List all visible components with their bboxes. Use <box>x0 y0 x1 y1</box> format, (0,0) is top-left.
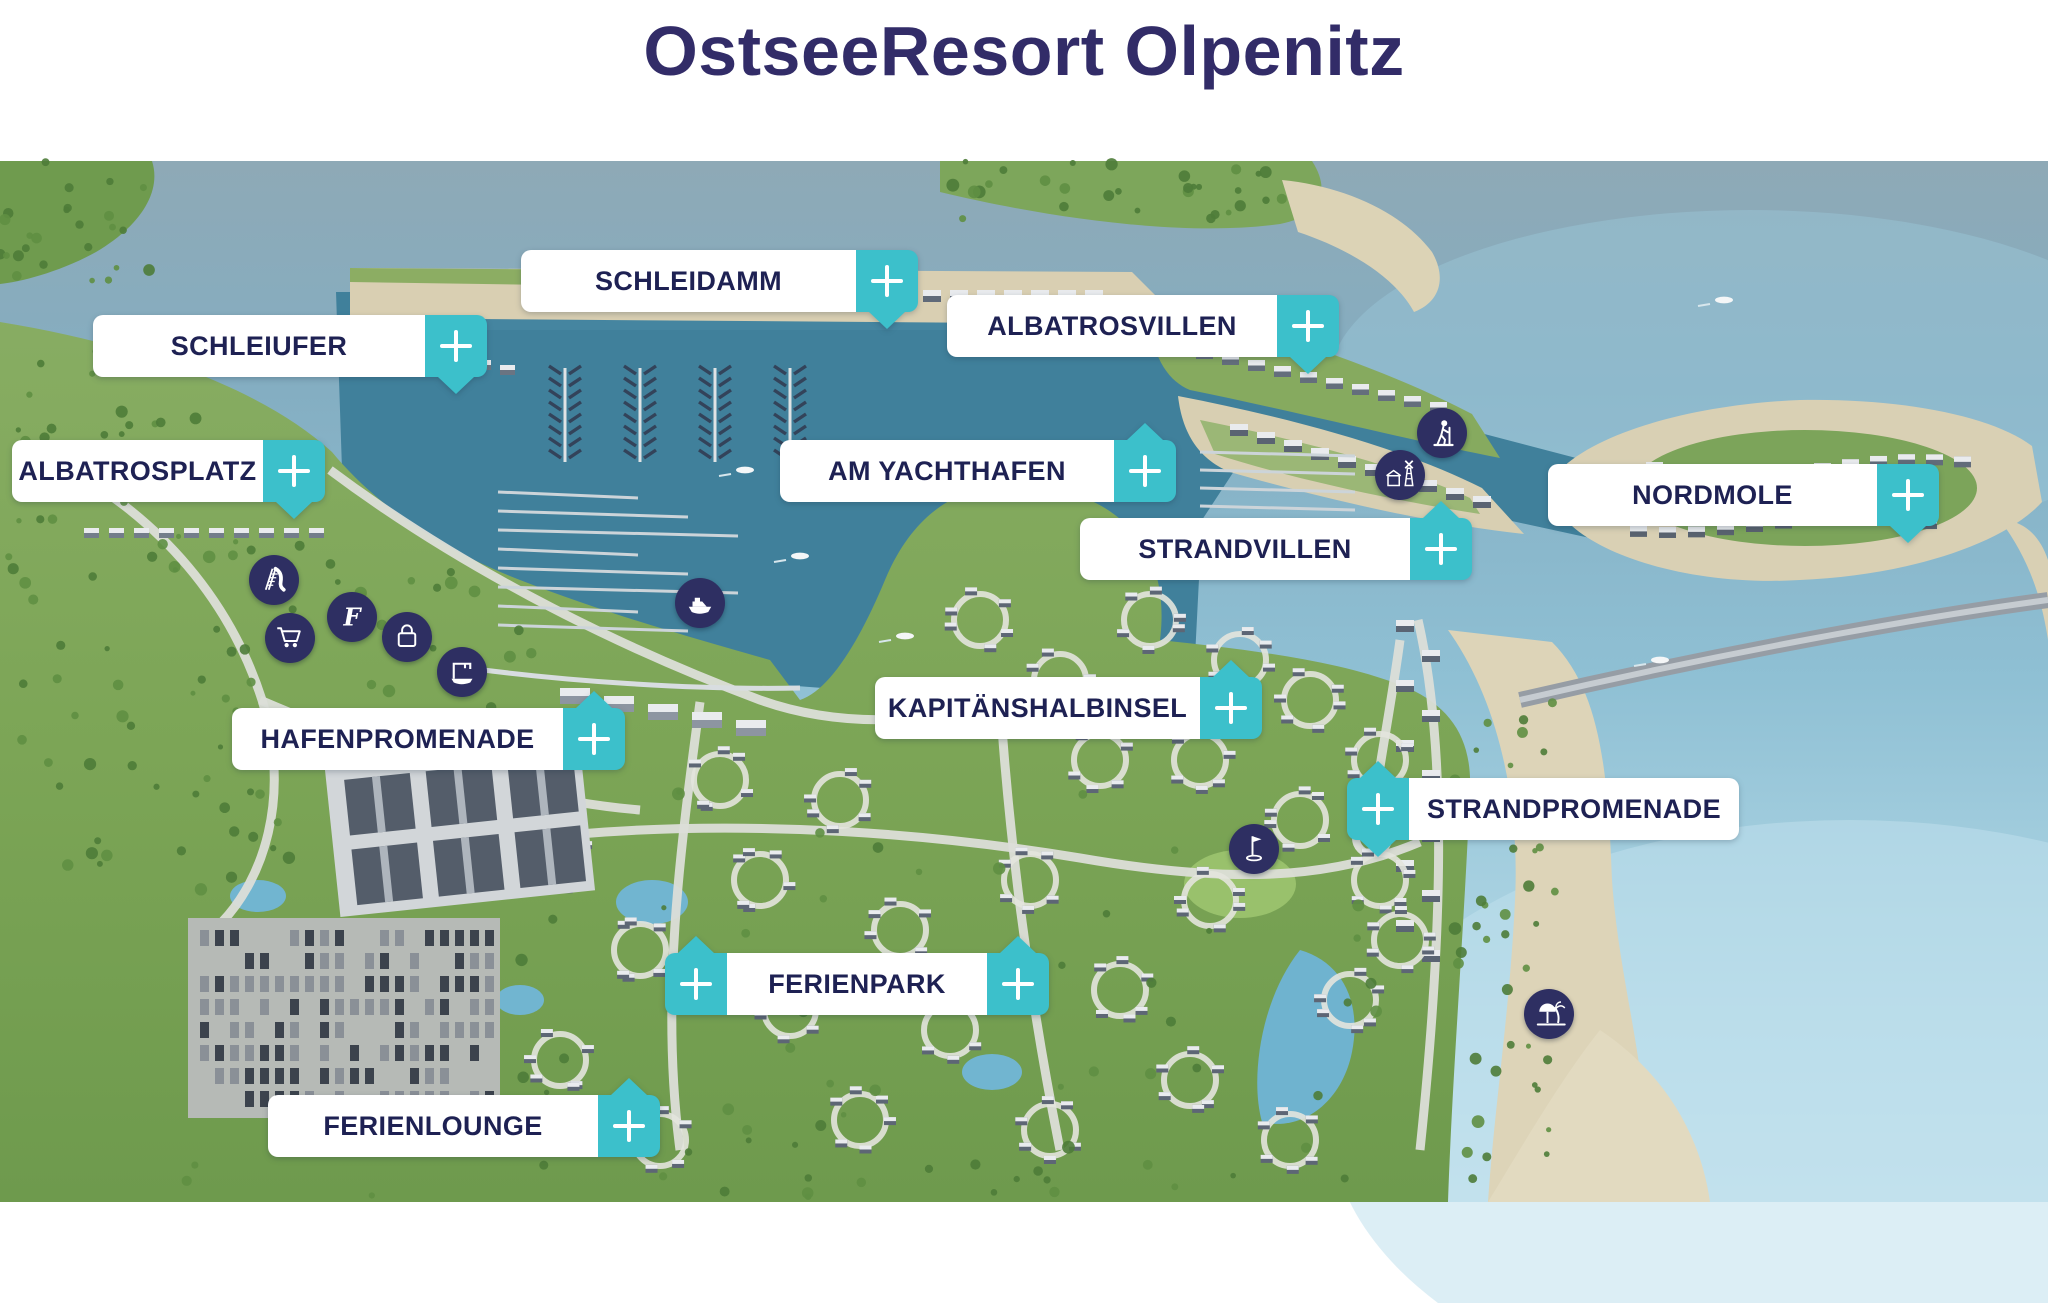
label-box-hafenpromenade[interactable]: HAFENPROMENADE <box>232 708 563 770</box>
marker-tail-down <box>438 377 474 394</box>
label-text: HAFENPROMENADE <box>260 724 534 755</box>
plus-button-strandvillen[interactable] <box>1410 518 1472 580</box>
label-box-schleidamm[interactable]: SCHLEIDAMM <box>521 250 856 312</box>
label-ferienpark: FERIENPARK <box>665 953 1049 1015</box>
marker-tail-up <box>1360 761 1396 778</box>
golf-icon[interactable] <box>1229 824 1279 874</box>
ferry-icon[interactable] <box>675 578 725 628</box>
cart-glyph <box>272 620 308 656</box>
marker-tail-down <box>1890 526 1926 543</box>
label-box-am-yachthafen[interactable]: AM YACHTHAFEN <box>780 440 1114 502</box>
waterslide-icon[interactable] <box>249 555 299 605</box>
ferry-glyph <box>682 585 718 621</box>
label-albatrosvillen: ALBATROSVILLEN <box>947 295 1339 357</box>
label-text: FERIENLOUNGE <box>323 1111 542 1142</box>
marker-tail-down <box>276 502 312 519</box>
mill-glyph <box>1382 457 1418 493</box>
label-box-kapitaenshalbinsel[interactable]: KAPITÄNSHALBINSEL <box>875 677 1200 739</box>
shopping-cart-icon[interactable] <box>265 613 315 663</box>
label-ferienlounge: FERIENLOUNGE <box>268 1095 660 1157</box>
marker-tail-down <box>1360 840 1396 857</box>
label-text: STRANDPROMENADE <box>1427 794 1721 825</box>
label-box-strandpromenade[interactable]: STRANDPROMENADE <box>1409 778 1739 840</box>
marker-tail-up <box>576 691 612 708</box>
f-glyph: F <box>334 599 370 635</box>
marker-tail-up <box>678 936 714 953</box>
parking-lot <box>188 918 500 1118</box>
lift-glyph <box>444 654 480 690</box>
marker-tail-up <box>1000 936 1036 953</box>
label-box-nordmole[interactable]: NORDMOLE <box>1548 464 1877 526</box>
label-text: SCHLEIDAMM <box>595 266 782 297</box>
hiker-glyph <box>1424 415 1460 451</box>
marker-tail-up <box>1127 423 1163 440</box>
label-schleidamm: SCHLEIDAMM <box>521 250 918 312</box>
label-text: AM YACHTHAFEN <box>828 456 1066 487</box>
label-albatrosplatz: ALBATROSPLATZ <box>12 440 325 502</box>
f-logo-icon[interactable]: F <box>327 592 377 642</box>
plus-button-ferienpark-left[interactable] <box>665 953 727 1015</box>
slide-glyph <box>256 562 292 598</box>
plus-button-albatrosvillen[interactable] <box>1277 295 1339 357</box>
label-text: FERIENPARK <box>768 969 946 1000</box>
plus-button-schleidamm[interactable] <box>856 250 918 312</box>
bag-glyph <box>389 619 425 655</box>
plus-button-ferienlounge[interactable] <box>598 1095 660 1157</box>
windmill-icon[interactable] <box>1375 450 1425 500</box>
label-hafenpromenade: HAFENPROMENADE <box>232 708 625 770</box>
hiker-icon[interactable] <box>1417 408 1467 458</box>
plus-button-am-yachthafen[interactable] <box>1114 440 1176 502</box>
label-box-albatrosvillen[interactable]: ALBATROSVILLEN <box>947 295 1277 357</box>
plus-button-schleiufer[interactable] <box>425 315 487 377</box>
boat-lift-icon[interactable] <box>437 647 487 697</box>
label-box-ferienpark[interactable]: FERIENPARK <box>727 953 987 1015</box>
resort-map-page: OstseeResort Olpenitz SCHLEIDAMMSCHLEIUF… <box>0 0 2048 1303</box>
label-box-ferienlounge[interactable]: FERIENLOUNGE <box>268 1095 598 1157</box>
label-text: KAPITÄNSHALBINSEL <box>888 693 1187 724</box>
plus-button-nordmole[interactable] <box>1877 464 1939 526</box>
golf-glyph <box>1236 831 1272 867</box>
label-text: ALBATROSPLATZ <box>18 456 256 487</box>
marker-tail-down <box>869 312 905 329</box>
shopping-bag-icon[interactable] <box>382 612 432 662</box>
plus-button-hafenpromenade[interactable] <box>563 708 625 770</box>
label-box-schleiufer[interactable]: SCHLEIUFER <box>93 315 425 377</box>
marker-tail-up <box>611 1078 647 1095</box>
marker-tail-up <box>1423 501 1459 518</box>
plus-button-strandpromenade[interactable] <box>1347 778 1409 840</box>
beach-glyph <box>1531 996 1567 1032</box>
plus-button-ferienpark-right[interactable] <box>987 953 1049 1015</box>
beach-icon[interactable] <box>1524 989 1574 1039</box>
label-nordmole: NORDMOLE <box>1548 464 1939 526</box>
label-text: ALBATROSVILLEN <box>987 311 1237 342</box>
marker-tail-down <box>1290 357 1326 374</box>
label-text: SCHLEIUFER <box>171 331 348 362</box>
label-text: STRANDVILLEN <box>1138 534 1351 565</box>
label-box-albatrosplatz[interactable]: ALBATROSPLATZ <box>12 440 263 502</box>
svg-text:F: F <box>342 602 362 631</box>
label-kapitaenshalbinsel: KAPITÄNSHALBINSEL <box>875 677 1262 739</box>
marker-tail-up <box>1213 660 1249 677</box>
label-strandpromenade: STRANDPROMENADE <box>1347 778 1739 840</box>
plus-button-kapitaenshalbinsel[interactable] <box>1200 677 1262 739</box>
label-text: NORDMOLE <box>1632 480 1793 511</box>
label-box-strandvillen[interactable]: STRANDVILLEN <box>1080 518 1410 580</box>
label-strandvillen: STRANDVILLEN <box>1080 518 1472 580</box>
plus-button-albatrosplatz[interactable] <box>263 440 325 502</box>
label-schleiufer: SCHLEIUFER <box>93 315 487 377</box>
label-am-yachthafen: AM YACHTHAFEN <box>780 440 1176 502</box>
